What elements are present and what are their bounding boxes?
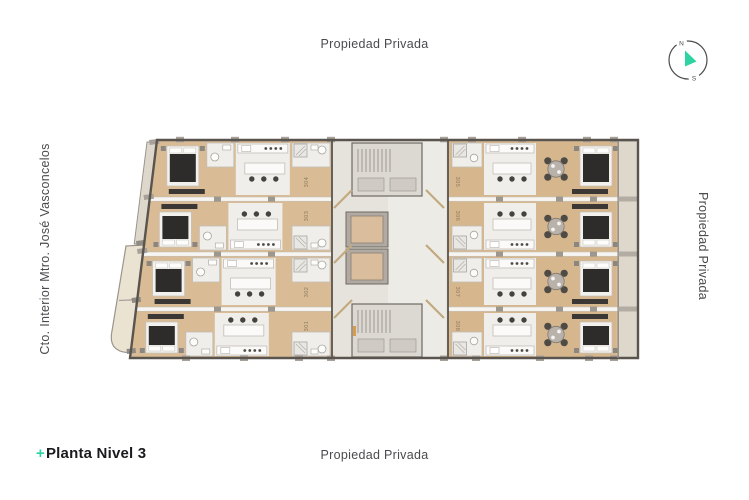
unit-number: 308 [454, 321, 460, 332]
unit-number: 307 [454, 287, 460, 298]
console [148, 314, 184, 319]
console [572, 299, 608, 304]
toilet [203, 232, 211, 240]
dining-table [548, 161, 564, 177]
console [161, 204, 197, 209]
kitchen-island [224, 325, 264, 336]
elevator-cab [351, 216, 383, 243]
kitchen-island [245, 163, 285, 174]
toilet [211, 153, 219, 161]
console [572, 189, 608, 194]
console [572, 204, 608, 209]
kitchen-island [493, 325, 531, 336]
kitchen-island [493, 163, 531, 174]
staircase-top [352, 143, 422, 196]
toilet [470, 154, 478, 162]
unit-number: 303 [304, 211, 310, 222]
balcony-right [619, 141, 638, 358]
unit-number: 306 [454, 211, 460, 222]
toilet [197, 268, 205, 276]
toilet [318, 345, 326, 353]
staircase-bottom [352, 304, 422, 357]
dining-table [548, 273, 564, 289]
elevator-cab [351, 253, 383, 280]
dining-table [548, 218, 564, 234]
toilet [190, 338, 198, 346]
toilet [318, 239, 326, 247]
console [572, 314, 608, 319]
unit-number: 305 [454, 177, 460, 188]
unit-307 [450, 257, 618, 306]
kitchen-island [231, 278, 271, 289]
unit-number: 304 [304, 177, 310, 188]
unit-305 [450, 142, 618, 196]
dining-table [548, 326, 564, 342]
unit-number: 301 [304, 321, 310, 332]
toilet [470, 231, 478, 239]
page: Propiedad Privada Propiedad Privada Cto.… [0, 0, 749, 500]
unit-302 [144, 257, 331, 306]
kitchen-island [237, 219, 277, 230]
floor-plan: 304303302301305306307308 [0, 0, 749, 500]
unit-301 [137, 312, 331, 357]
kitchen-island [493, 278, 531, 289]
toilet [318, 146, 326, 154]
toilet [318, 261, 326, 269]
console [155, 299, 191, 304]
unit-308 [450, 312, 618, 357]
unit-303 [150, 202, 331, 251]
kitchen-island [493, 219, 531, 230]
toilet [470, 337, 478, 345]
console [169, 189, 205, 194]
unit-306 [450, 202, 618, 251]
toilet [470, 269, 478, 277]
unit-number: 302 [304, 287, 310, 298]
